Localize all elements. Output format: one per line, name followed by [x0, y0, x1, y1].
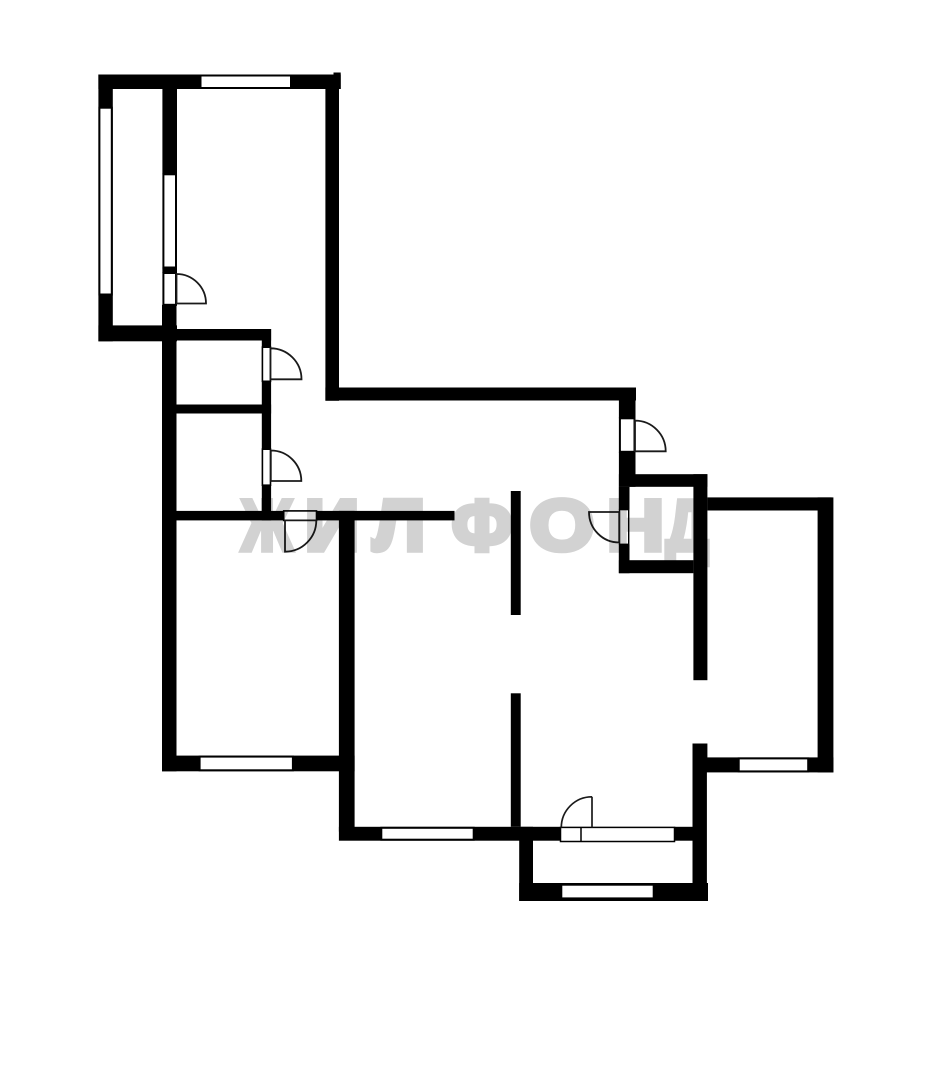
svg-text:И: И: [305, 487, 359, 566]
svg-text:Н: Н: [607, 487, 664, 566]
svg-text:Л: Л: [373, 487, 425, 566]
svg-text:Ж: Ж: [241, 487, 292, 566]
svg-text:О: О: [530, 487, 594, 566]
svg-text:Ф: Ф: [452, 487, 512, 566]
svg-text:Д: Д: [666, 487, 708, 566]
